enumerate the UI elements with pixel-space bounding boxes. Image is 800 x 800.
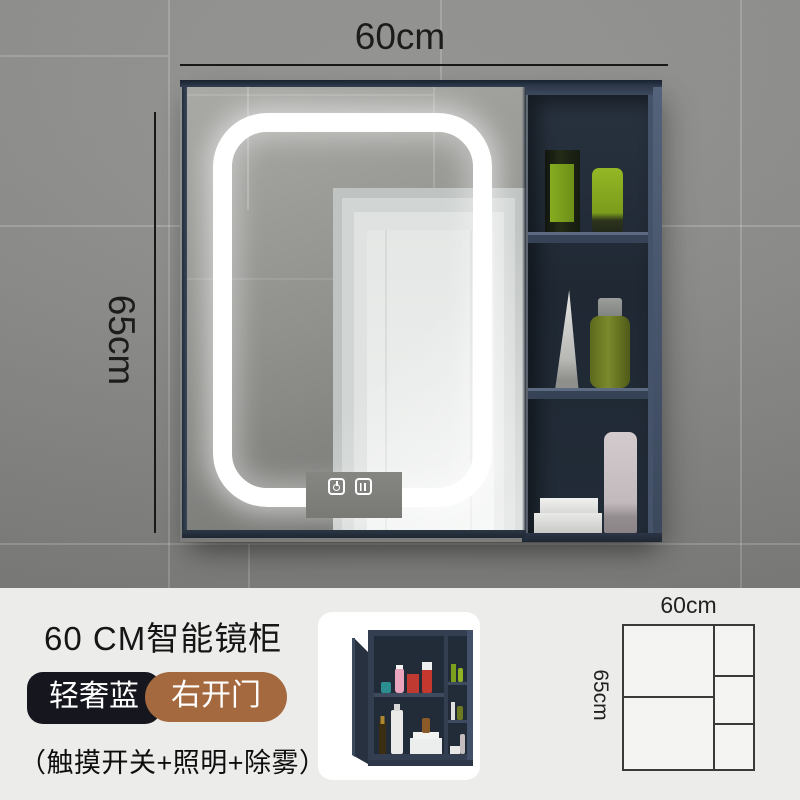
product-listing-image: 60cm 65cm: [0, 0, 800, 800]
size-diagram-height-label: 65cm: [588, 669, 612, 720]
variant-badge-color[interactable]: 轻奢蓝: [27, 672, 161, 724]
led-gap: [306, 472, 402, 518]
dimension-width-label: 60cm: [355, 16, 445, 58]
info-panel: 60 CM智能镜柜 轻奢蓝右开门 （触摸开关+照明+除雾）: [0, 588, 800, 800]
diagram-divider: [713, 626, 715, 769]
diagram-divider: [624, 696, 713, 698]
shelf-divider: [528, 388, 648, 399]
cosmetic-bottle-olive: [590, 298, 630, 388]
cabinet-top-frame: [180, 80, 662, 87]
cosmetic-box-green: [545, 150, 580, 232]
product-thumbnail[interactable]: [318, 612, 480, 780]
shelf-divider: [528, 232, 648, 243]
door-frame-right: [522, 86, 526, 538]
variant-badges: 轻奢蓝右开门: [27, 672, 287, 724]
door-frame-bottom: [182, 530, 526, 538]
cosmetic-tube-pink: [604, 432, 637, 533]
mirror-door: [182, 86, 526, 538]
towel-stack: [534, 498, 602, 533]
product-title: 60 CM智能镜柜: [44, 612, 282, 660]
variant-badge-door[interactable]: 右开门: [145, 672, 287, 722]
diagram-divider: [715, 723, 753, 725]
cosmetic-tube-green: [592, 168, 623, 232]
mirror-reflection-line: [182, 94, 433, 96]
shelf-side-panel: [653, 84, 662, 540]
defog-icon[interactable]: [355, 478, 372, 495]
dimension-height-line: [154, 112, 156, 533]
features-note: （触摸开关+照明+除雾）: [19, 741, 327, 780]
bathroom-photo: 60cm 65cm: [0, 0, 800, 588]
thumbnail-cabinet-illustration: [318, 612, 480, 780]
dimension-width-line: [180, 64, 668, 66]
diagram-divider: [715, 675, 753, 677]
mirror-cabinet: [180, 80, 662, 542]
dimension-height-label: 65cm: [100, 295, 142, 385]
size-diagram: [622, 624, 755, 771]
led-light-ring: [213, 113, 492, 507]
open-shelf-unit: [522, 80, 662, 542]
size-diagram-width-label: 60cm: [622, 592, 755, 619]
shelf-frame-bottom: [522, 533, 662, 542]
door-frame-left: [182, 86, 187, 538]
power-icon[interactable]: [328, 478, 345, 495]
